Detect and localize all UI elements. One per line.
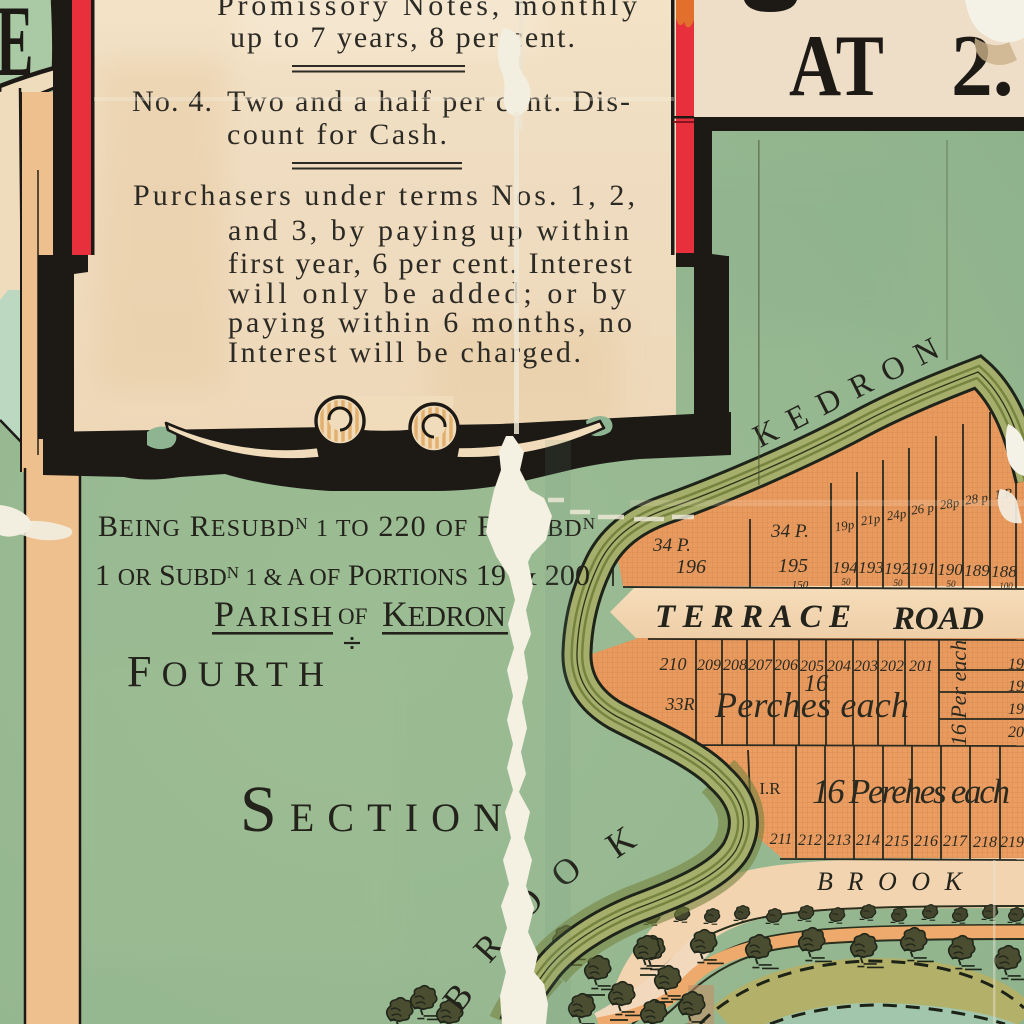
- svg-text:BROOK: BROOK: [817, 867, 977, 896]
- svg-text:24p: 24p: [886, 506, 908, 524]
- svg-text:50: 50: [894, 578, 904, 588]
- svg-text:188: 188: [991, 562, 1017, 581]
- svg-text:E: E: [0, 0, 33, 97]
- svg-text:215: 215: [885, 833, 909, 850]
- svg-text:206: 206: [774, 657, 798, 674]
- svg-text:213: 213: [827, 832, 851, 849]
- svg-text:34 P.: 34 P.: [770, 521, 809, 542]
- svg-text:217: 217: [943, 833, 968, 850]
- svg-text:Two and a half per cent. Dis-: Two and a half per cent. Dis-: [227, 85, 630, 118]
- svg-text:I.R: I.R: [759, 779, 781, 798]
- svg-text:count for Cash.: count for Cash.: [227, 118, 447, 151]
- svg-text:201: 201: [909, 658, 933, 675]
- svg-text:first year, 6 per cent. Intere: first year, 6 per cent. Interest: [228, 247, 633, 280]
- svg-text:Purchasers under terms Nos. 1,: Purchasers under terms Nos. 1, 2,: [133, 179, 635, 212]
- svg-text:34 P.: 34 P.: [652, 535, 691, 556]
- svg-text:219: 219: [1000, 834, 1024, 851]
- svg-text:FOURTH: FOURTH: [127, 647, 333, 696]
- svg-text:196: 196: [676, 556, 706, 578]
- svg-text:TERRACE: TERRACE: [655, 599, 860, 635]
- svg-text:20: 20: [1008, 724, 1024, 741]
- svg-text:21p: 21p: [860, 511, 882, 529]
- svg-text:203: 203: [854, 658, 878, 675]
- svg-text:OF: OF: [338, 604, 367, 629]
- svg-text:202: 202: [880, 658, 904, 675]
- svg-text:50: 50: [842, 577, 852, 587]
- svg-text:211: 211: [770, 831, 793, 848]
- svg-text:195: 195: [778, 555, 808, 577]
- svg-text:191: 191: [910, 559, 936, 578]
- svg-text:Perches each: Perches each: [714, 685, 909, 725]
- svg-text:16 Perehes each: 16 Perehes each: [812, 772, 1010, 811]
- svg-text:19p: 19p: [834, 517, 856, 535]
- svg-text:208: 208: [723, 657, 747, 674]
- svg-text:190: 190: [937, 560, 963, 579]
- svg-text:100: 100: [999, 581, 1013, 591]
- svg-text:216: 216: [914, 833, 938, 850]
- svg-text:207: 207: [748, 657, 773, 674]
- svg-text:204: 204: [827, 658, 851, 675]
- svg-text:194: 194: [832, 558, 858, 577]
- svg-text:210: 210: [660, 654, 687, 674]
- svg-text:19: 19: [1008, 701, 1024, 718]
- svg-text:193: 193: [858, 558, 884, 577]
- svg-text:33R: 33R: [665, 694, 695, 714]
- svg-text:50: 50: [947, 579, 957, 589]
- svg-text:AT: AT: [789, 17, 884, 114]
- svg-text:214: 214: [856, 832, 880, 849]
- svg-text:150: 150: [792, 579, 809, 591]
- svg-text:212: 212: [798, 832, 822, 849]
- svg-text:16 Per each: 16 Per each: [946, 640, 971, 746]
- svg-text:No. 4.: No. 4.: [132, 85, 212, 118]
- svg-text:189: 189: [964, 561, 990, 580]
- svg-text:19: 19: [1008, 678, 1024, 695]
- svg-text:218: 218: [973, 834, 997, 851]
- svg-text:209: 209: [697, 657, 721, 674]
- svg-text:192: 192: [884, 559, 910, 578]
- svg-text:ROAD: ROAD: [892, 601, 993, 637]
- svg-text:19: 19: [1008, 656, 1024, 673]
